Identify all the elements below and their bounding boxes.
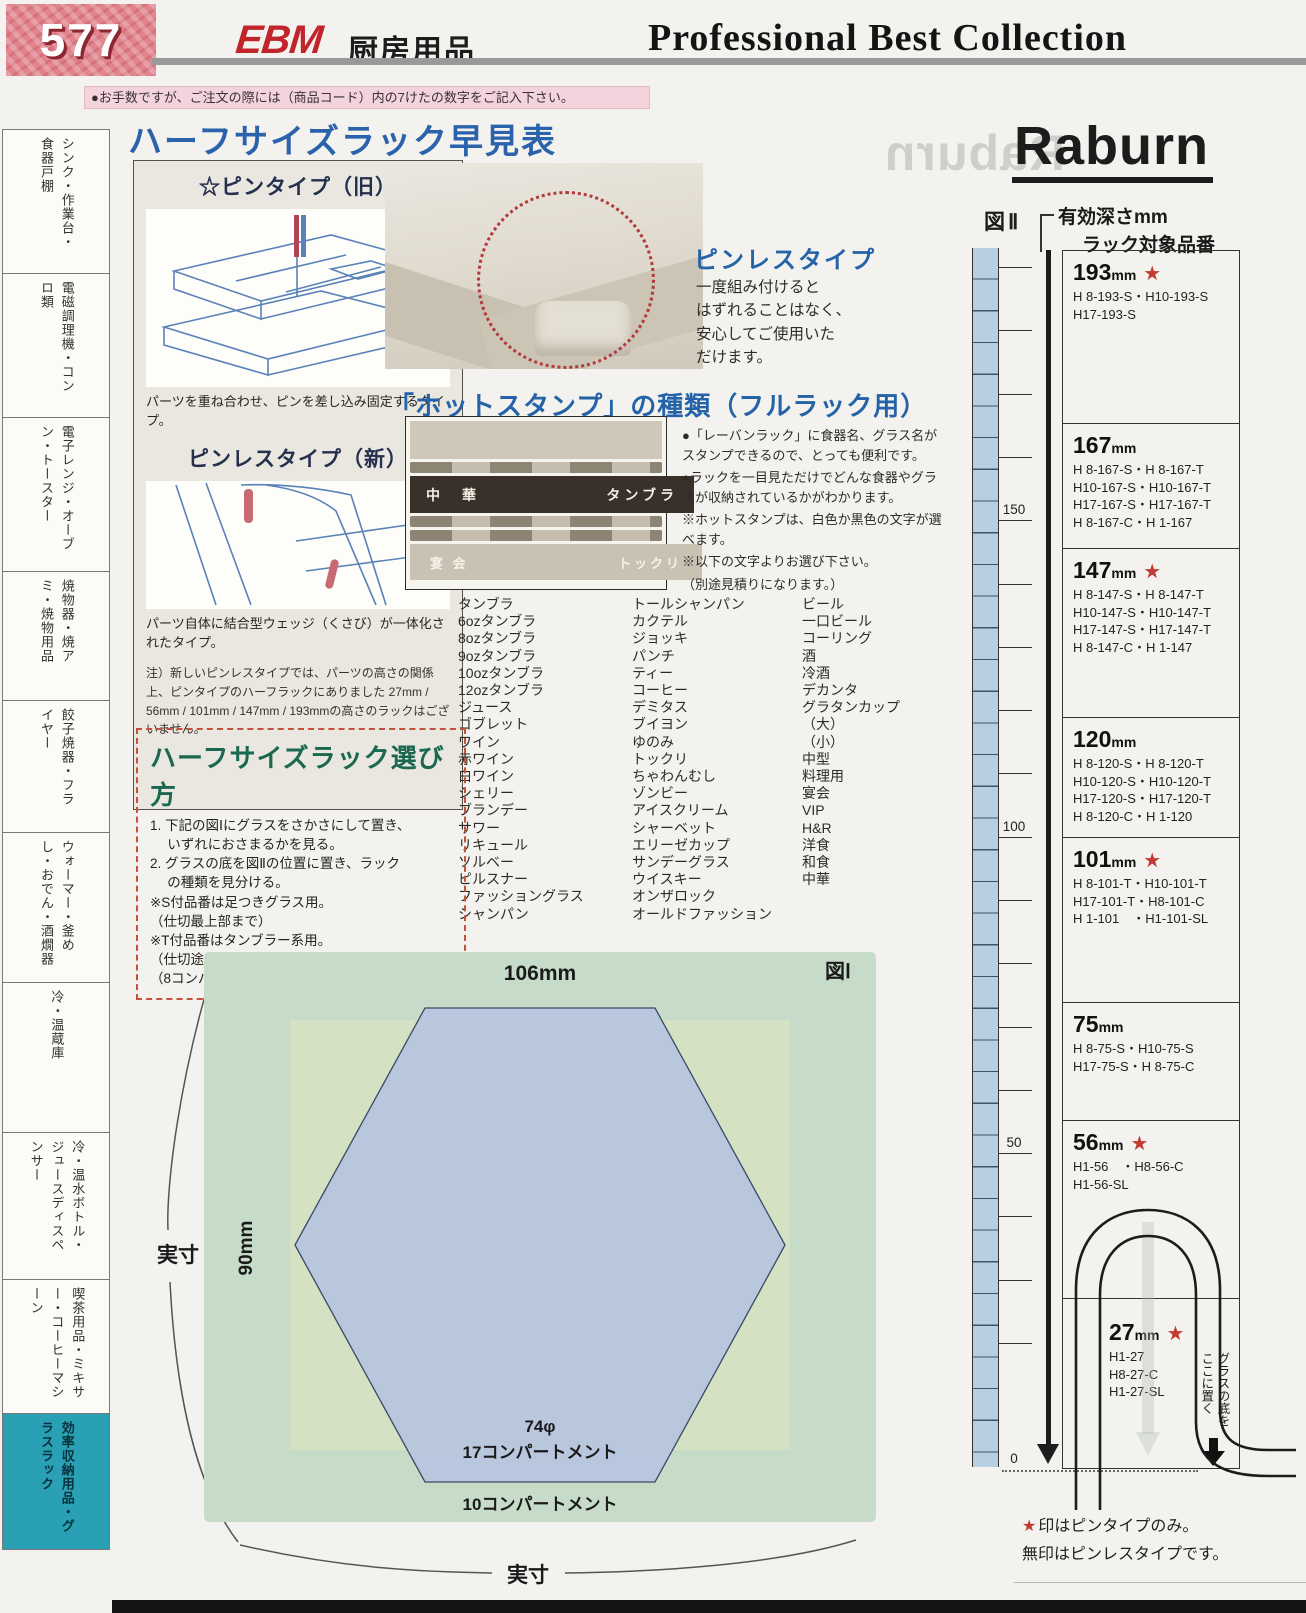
glass-name-column-3: ビール一口ビールコーリング酒冷酒デカンタグラタンカップ（大）（小）中型料理用宴会… [802, 596, 942, 888]
glass-name: 冷酒 [802, 665, 942, 682]
ruler-tick [999, 900, 1032, 901]
ruler-tick [999, 330, 1032, 331]
glass-name: 一口ビール [802, 613, 942, 630]
order-note: ●お手数ですが、ご注文の際には（商品コード）内の7けたの数字をご記入下さい。 [84, 86, 650, 109]
product-code: H10-147-S・H10-147-T [1073, 604, 1235, 622]
sidebar-item-label: 冷・温水ボトル・ジュースディスペンサー [25, 1140, 87, 1265]
catalog-page: 577 EBM 厨房用品 Professional Best Collectio… [0, 0, 1306, 1613]
sidebar-item: 電磁調理機・コンロ類 [2, 273, 110, 418]
figure2-label: 図Ⅱ [984, 206, 1021, 236]
hotstamp-bullet: （別途見積りになります。） [682, 575, 948, 595]
sidebar-item-label: ウォーマー・釜めし・おでん・酒燗器 [35, 840, 77, 968]
figure1-label: 図Ⅰ [825, 961, 851, 983]
stamp-label: 宴 会 [430, 553, 469, 572]
product-code: H 8-120-S・H 8-120-T [1073, 755, 1235, 773]
depth-section-120mm: 120mmH 8-120-S・H 8-120-TH10-120-S・H10-12… [1063, 718, 1239, 838]
ruler-tick [999, 710, 1032, 711]
rack-layer: 宴 会 トックリ [410, 544, 702, 580]
glass-name: （大） [802, 716, 942, 733]
guide-step: 1. 下記の図Ⅰにグラスをさかさにして置き、 [150, 816, 452, 835]
glass-name: デカンタ [802, 682, 942, 699]
glass-name: （小） [802, 734, 942, 751]
glass-name: 赤ワイン [458, 751, 628, 768]
glass-name: シャンパン [458, 906, 628, 923]
glass-name: 料理用 [802, 768, 942, 785]
sidebar-item: 冷・温水ボトル・ジュースディスペンサー [2, 1132, 110, 1280]
depth-unit: mm [1099, 1137, 1124, 1153]
glass-name: 白ワイン [458, 768, 628, 785]
product-code: H17-101-T・H8-101-C [1073, 893, 1235, 911]
glass-name: ビール [802, 596, 942, 613]
product-code: H 8-120-C・H 1-120 [1073, 808, 1235, 826]
depth-value: 147 [1073, 557, 1111, 583]
glass-name: 酒 [802, 648, 942, 665]
depth-unit: mm [1111, 854, 1136, 870]
sidebar-item: 電子レンジ・オーブン・トースター [2, 417, 110, 572]
glass-name: ワイン [458, 734, 628, 751]
glass-name: ファッショングラス [458, 888, 628, 905]
product-code: H17-193-S [1073, 306, 1235, 324]
depth-unit: mm [1111, 440, 1136, 456]
rack-slots [410, 462, 662, 473]
depth-section-101mm: 101mm★H 8-101-T・H10-101-TH17-101-T・H8-10… [1063, 838, 1239, 1003]
ruler-tick [999, 1153, 1032, 1154]
glass-name: ブランデー [458, 802, 628, 819]
glass-name: ソルベー [458, 854, 628, 871]
stamp-label: タンブラ [606, 485, 678, 505]
glass-name: ゴブレット [458, 716, 628, 733]
guide-step: （仕切最上部まで） [150, 912, 452, 931]
ruler-tick [999, 584, 1032, 585]
depth-unit: mm [1111, 734, 1136, 750]
ruler-tick [999, 963, 1032, 964]
sidebar-item-label: 餃子焼器・フライヤー [35, 708, 77, 818]
depth-section-167mm: 167mmH 8-167-S・H 8-167-TH10-167-S・H10-16… [1063, 424, 1239, 549]
glass-name: 和食 [802, 854, 942, 871]
figure1-diagram: 106mm 図Ⅰ 90mm 実寸 74φ 17コンパートメント 10コンパートメ… [140, 930, 900, 1590]
glass-name: コーリング [802, 630, 942, 647]
depth-header: 167mm [1073, 432, 1235, 459]
ruler-tick [999, 1280, 1032, 1281]
sidebar-item: 餃子焼器・フライヤー [2, 700, 110, 833]
sidebar-item: シンク・作業台・食器戸棚 [2, 129, 110, 274]
highlight-circle-icon [477, 191, 655, 369]
depth-header: 120mm [1073, 726, 1235, 753]
ruler-tick [999, 1343, 1032, 1344]
sidebar-item-label: 効率収納用品・グラスラック [35, 1421, 77, 1535]
rack-slots [410, 516, 662, 527]
ruler-tick [999, 394, 1032, 395]
depth-arrow-line [1046, 250, 1051, 1446]
depth-header: 56mm★ [1073, 1129, 1235, 1156]
product-code: H 1-101 ・H1-101-SL [1073, 910, 1235, 928]
depth-header: 75mm [1073, 1011, 1235, 1038]
sidebar-item: 効率収納用品・グラスラック [2, 1413, 110, 1550]
pinless-heading: ピンレスタイプ [694, 240, 876, 275]
product-code: H10-167-S・H10-167-T [1073, 479, 1235, 497]
depth-scale-label: 150 [988, 502, 1040, 517]
glass-name: 8ozタンブラ [458, 630, 628, 647]
glass-name: リキュール [458, 837, 628, 854]
depth-section-193mm: 193mm★H 8-193-S・H10-193-SH17-193-S [1063, 251, 1239, 424]
width-dimension: 106mm [504, 962, 576, 985]
pinless-photo [385, 163, 703, 369]
depth-header: 147mm★ [1073, 557, 1235, 584]
ruler-tick [999, 773, 1032, 774]
product-code: H17-120-S・H17-120-T [1073, 790, 1235, 808]
glass-name: ピルスナー [458, 871, 628, 888]
depth-value: 56 [1073, 1129, 1099, 1155]
glass-name-column-1: タンブラ6ozタンブラ8ozタンブラ9ozタンブラ10ozタンブラ12ozタンブ… [458, 596, 628, 923]
hotstamp-bullet: ※以下の文字よりお選び下さい。 [682, 552, 948, 572]
glass-name: グラタンカップ [802, 699, 942, 716]
guide-step: ※S付品番は足つきグラス用。 [150, 893, 452, 912]
ebm-logo: EBM [234, 18, 325, 63]
hotstamp-bullet: ●ラックを一目見ただけでどんな食器やグラスが収納されているかがわかります。 [682, 468, 948, 507]
sidebar-item-label: 冷・温蔵庫 [46, 990, 67, 1118]
rack-layer [410, 421, 662, 459]
glass-name: 10ozタンブラ [458, 665, 628, 682]
rack-slots [410, 530, 662, 541]
product-code: H17-147-S・H17-147-T [1073, 621, 1235, 639]
depth-scale-label: 100 [988, 819, 1040, 834]
pin-type-star-icon: ★ [1143, 850, 1161, 872]
pin-type-star-icon: ★ [1143, 263, 1161, 285]
depth-heading: 有効深さmm [1058, 202, 1168, 229]
product-code: H 8-147-C・H 1-147 [1073, 639, 1235, 657]
depth-section-147mm: 147mm★H 8-147-S・H 8-147-TH10-147-S・H10-1… [1063, 549, 1239, 718]
star-footnote: ★印はピンタイプのみ。 [1022, 1512, 1198, 1536]
guide-heading: ハーフサイズラック選び方 [150, 738, 452, 812]
product-code: H 8-167-S・H 8-167-T [1073, 461, 1235, 479]
depth-value: 75 [1073, 1011, 1099, 1037]
ruler-tick [999, 1027, 1032, 1028]
depth-bracket-line [1040, 214, 1054, 252]
stamp-label: トックリ [618, 553, 682, 572]
glass-name: ジュース [458, 699, 628, 716]
page-title: ハーフサイズラック早見表 [128, 114, 557, 163]
sidebar-item-label: 電子レンジ・オーブン・トースター [35, 425, 77, 557]
actual-size-left-label: 実寸 [157, 1243, 199, 1267]
hotstamp-notes: ●「レーバンラック」に食器名、グラス名がスタンプできるので、とっても便利です。●… [682, 426, 948, 597]
glass-name: サワー [458, 820, 628, 837]
ruler-tick [999, 837, 1032, 838]
category-sidebar: シンク・作業台・食器戸棚電磁調理機・コンロ類電子レンジ・オーブン・トースター焼物… [2, 130, 110, 1550]
ruler-tick [999, 647, 1032, 648]
hex-compartments-label: 17コンパートメント [463, 1443, 618, 1462]
glass-name: 中華 [802, 871, 942, 888]
ruler-tick [999, 267, 1032, 268]
glass-profile-outline [1056, 1180, 1296, 1510]
sidebar-item-label: 電磁調理機・コンロ類 [35, 281, 77, 403]
product-code: H 8-167-C・H 1-167 [1073, 514, 1235, 532]
pinless-body: 一度組み付けると はずれることはなく、 安心してご使用いた だけます。 [696, 276, 911, 369]
ruler-tick [999, 457, 1032, 458]
stamp-label: 中 華 [426, 485, 480, 505]
depth-value: 120 [1073, 726, 1111, 752]
depth-section-75mm: 75mmH 8-75-S・H10-75-SH17-75-S・H 8-75-C [1063, 1003, 1239, 1121]
pin-type-star-icon: ★ [1131, 1133, 1149, 1155]
page-number-box: 577 [6, 4, 156, 76]
product-code: H17-75-S・H 8-75-C [1073, 1058, 1235, 1076]
raburn-logo: Raburn [1012, 118, 1213, 183]
product-code: H 8-147-S・H 8-147-T [1073, 586, 1235, 604]
collection-title: Professional Best Collection [648, 16, 1127, 60]
sidebar-item-label: シンク・作業台・食器戸棚 [35, 137, 77, 259]
depth-ruler [972, 248, 999, 1467]
hotstamp-bullet: ●「レーバンラック」に食器名、グラス名がスタンプできるので、とっても便利です。 [682, 426, 948, 465]
pin-type-star-icon: ★ [1143, 561, 1161, 583]
product-code: H17-167-S・H17-167-T [1073, 496, 1235, 514]
sidebar-item: ウォーマー・釜めし・おでん・酒燗器 [2, 832, 110, 983]
guide-step: の種類を見分ける。 [150, 873, 452, 892]
sidebar-item: 焼物器・焼アミ・焼物用品 [2, 571, 110, 701]
glass-name: オンザロック [632, 888, 847, 905]
depth-header: 193mm★ [1073, 259, 1235, 286]
sidebar-item-label: 焼物器・焼アミ・焼物用品 [35, 579, 77, 686]
page-bottom-bar [112, 1600, 1306, 1613]
divider-line [1014, 1582, 1306, 1583]
hotstamp-bullet: ※ホットスタンプは、白色か黒色の文字が選べます。 [682, 510, 948, 549]
glass-name: 6ozタンブラ [458, 613, 628, 630]
depth-scale-label: 0 [988, 1451, 1040, 1466]
glass-name: シェリー [458, 785, 628, 802]
glass-name: 12ozタンブラ [458, 682, 628, 699]
glass-name: 宴会 [802, 785, 942, 802]
glass-name: 9ozタンブラ [458, 648, 628, 665]
glass-name: 中型 [802, 751, 942, 768]
outer-compartments-label: 10コンパートメント [463, 1495, 618, 1514]
hotstamp-photo: 中 華 タンブラ 宴 会 トックリ [405, 416, 667, 590]
stamp-band: 中 華 タンブラ [410, 476, 694, 513]
product-code: H 8-75-S・H10-75-S [1073, 1040, 1235, 1058]
page-number: 577 [40, 13, 123, 67]
hex-diameter-label: 74φ [524, 1417, 555, 1436]
depth-value: 193 [1073, 259, 1111, 285]
product-code: H10-120-S・H10-120-T [1073, 773, 1235, 791]
depth-value: 101 [1073, 846, 1111, 872]
star-footnote-text: 印はピンタイプのみ。 [1038, 1518, 1198, 1535]
product-code: H 8-193-S・H10-193-S [1073, 288, 1235, 306]
depth-header: 101mm★ [1073, 846, 1235, 873]
height-dimension: 90mm [236, 1221, 257, 1276]
depth-value: 167 [1073, 432, 1111, 458]
depth-unit: mm [1099, 1019, 1124, 1035]
guide-step: 2. グラスの底を図Ⅱの位置に置き、ラック [150, 854, 452, 873]
star-icon: ★ [1022, 1518, 1036, 1535]
product-code: H1-56 ・H8-56-C [1073, 1158, 1235, 1176]
sidebar-item-label: 喫茶用品・ミキサー・コーヒーマシーン [25, 1287, 87, 1399]
product-code: H 8-101-T・H10-101-T [1073, 875, 1235, 893]
pin-icon [294, 215, 306, 297]
actual-size-bottom-label: 実寸 [507, 1563, 549, 1587]
pinless-caption: パーツ自体に結合型ウェッジ（くさび）が一体化されたタイプ。 [146, 615, 450, 653]
glass-name: オールドファッション [632, 906, 847, 923]
glass-name: タンブラ [458, 596, 628, 613]
ruler-tick [999, 1216, 1032, 1217]
guide-step: いずれにおさまるかを見る。 [150, 835, 452, 854]
sidebar-item: 喫茶用品・ミキサー・コーヒーマシーン [2, 1279, 110, 1414]
ruler-tick [999, 520, 1032, 521]
header-rule [152, 58, 1306, 65]
plain-footnote: 無印はピンレスタイプです。 [1022, 1540, 1228, 1564]
ruler-tick [999, 1090, 1032, 1091]
glass-name: H&R [802, 820, 942, 837]
depth-unit: mm [1111, 565, 1136, 581]
sidebar-item: 冷・温蔵庫 [2, 982, 110, 1133]
glass-name: 洋食 [802, 837, 942, 854]
depth-scale-label: 50 [988, 1135, 1040, 1150]
depth-unit: mm [1111, 267, 1136, 283]
glass-name: VIP [802, 802, 942, 819]
